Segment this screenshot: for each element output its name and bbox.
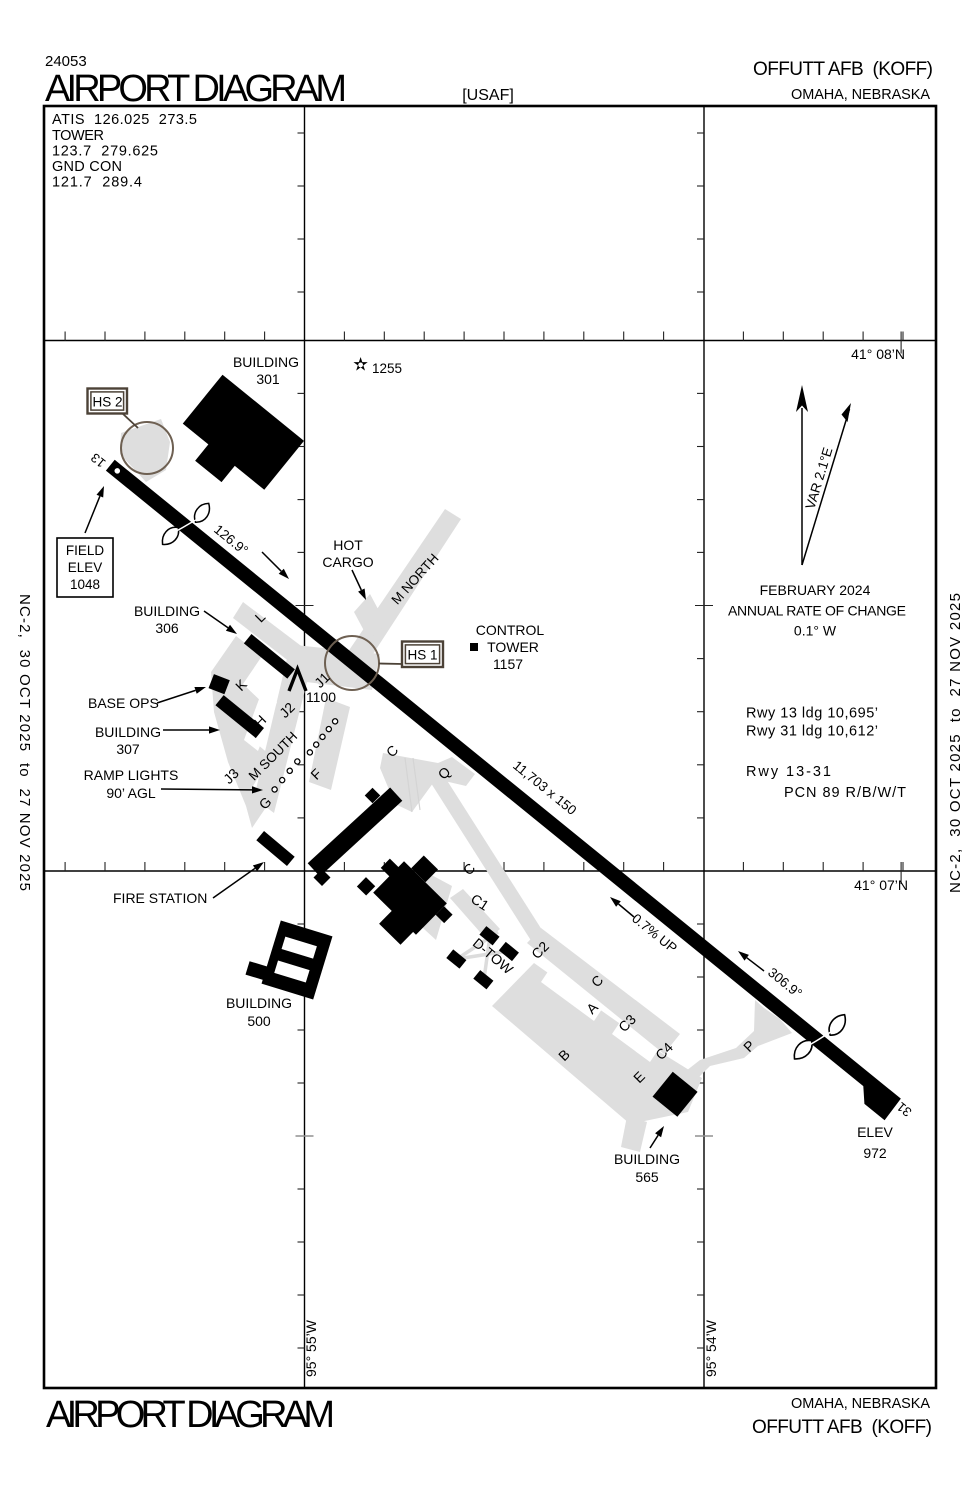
svg-text:BASE OPS: BASE OPS: [88, 695, 159, 711]
svg-text:FIRE STATION: FIRE STATION: [113, 890, 207, 906]
svg-text:[USAF]: [USAF]: [462, 87, 514, 104]
svg-text:ELEV: ELEV: [857, 1124, 893, 1140]
svg-text:1100: 1100: [306, 689, 336, 705]
svg-text:306: 306: [155, 620, 179, 636]
svg-text:FIELD: FIELD: [66, 543, 105, 558]
svg-text:1255: 1255: [372, 361, 402, 376]
svg-text:BUILDING: BUILDING: [95, 724, 161, 740]
svg-text:ANNUAL RATE OF CHANGE: ANNUAL RATE OF CHANGE: [728, 603, 906, 619]
svg-text:NC-2, 30 OCT 2025 to 27 NOV: NC-2, 30 OCT 2025 to 27 NOV 2025: [16, 594, 33, 891]
svg-text:OMAHA, NEBRASKA: OMAHA, NEBRASKA: [791, 1396, 930, 1412]
svg-text:ATIS 126.025 273.5: ATIS 126.025 273.5: [52, 112, 197, 128]
svg-text:41° 07’N: 41° 07’N: [854, 877, 908, 893]
svg-text:BUILDING: BUILDING: [233, 354, 299, 370]
svg-text:TOWER: TOWER: [487, 639, 539, 655]
svg-text:1157: 1157: [493, 656, 523, 672]
svg-text:301: 301: [256, 371, 280, 387]
svg-text:500: 500: [247, 1013, 271, 1029]
svg-text:121.7 289.4: 121.7 289.4: [52, 175, 142, 191]
svg-text:NC-2, 30 OCT 2025 to 27 NOV: NC-2, 30 OCT 2025 to 27 NOV 2025: [947, 593, 964, 893]
svg-text:90’ AGL: 90’ AGL: [106, 785, 156, 801]
svg-text:RAMP LIGHTS: RAMP LIGHTS: [84, 767, 179, 783]
svg-text:0.1° W: 0.1° W: [794, 623, 837, 639]
svg-text:TOWER: TOWER: [52, 128, 104, 144]
svg-text:972: 972: [863, 1145, 887, 1161]
svg-text:1048: 1048: [70, 577, 100, 592]
svg-text:307: 307: [116, 741, 140, 757]
svg-text:CARGO: CARGO: [322, 554, 373, 570]
svg-text:123.7 279.625: 123.7 279.625: [52, 144, 158, 160]
svg-text:OFFUTT AFB (KOFF): OFFUTT AFB (KOFF): [753, 59, 933, 80]
svg-text:Rwy 31 ldg 10,612’: Rwy 31 ldg 10,612’: [746, 724, 878, 740]
svg-text:GND CON: GND CON: [52, 159, 122, 175]
svg-text:FEBRUARY 2024: FEBRUARY 2024: [760, 582, 871, 598]
svg-text:HS 1: HS 1: [407, 648, 437, 663]
svg-text:Rwy 13 ldg 10,695’: Rwy 13 ldg 10,695’: [746, 706, 878, 722]
svg-text:565: 565: [635, 1169, 659, 1185]
svg-text:BUILDING: BUILDING: [134, 603, 200, 619]
svg-text:AIRPORT DIAGRAM: AIRPORT DIAGRAM: [46, 1394, 335, 1436]
svg-text:BUILDING: BUILDING: [226, 995, 292, 1011]
svg-text:PCN 89 R/B/W/T: PCN 89 R/B/W/T: [784, 785, 906, 801]
svg-text:41° 08’N: 41° 08’N: [851, 346, 905, 362]
svg-text:CONTROL: CONTROL: [476, 622, 545, 638]
svg-text:ELEV: ELEV: [68, 560, 103, 575]
svg-text:BUILDING: BUILDING: [614, 1151, 680, 1167]
svg-text:HS 2: HS 2: [92, 395, 122, 410]
svg-text:Rwy 13-31: Rwy 13-31: [746, 764, 831, 780]
svg-text:95° 55’W: 95° 55’W: [303, 1319, 319, 1377]
svg-text:HOT: HOT: [333, 537, 363, 553]
svg-text:OMAHA, NEBRASKA: OMAHA, NEBRASKA: [791, 87, 930, 103]
svg-text:OFFUTT AFB (KOFF): OFFUTT AFB (KOFF): [752, 1417, 932, 1438]
svg-text:95° 54’W: 95° 54’W: [703, 1319, 719, 1377]
svg-text:AIRPORT DIAGRAM: AIRPORT DIAGRAM: [45, 68, 347, 110]
